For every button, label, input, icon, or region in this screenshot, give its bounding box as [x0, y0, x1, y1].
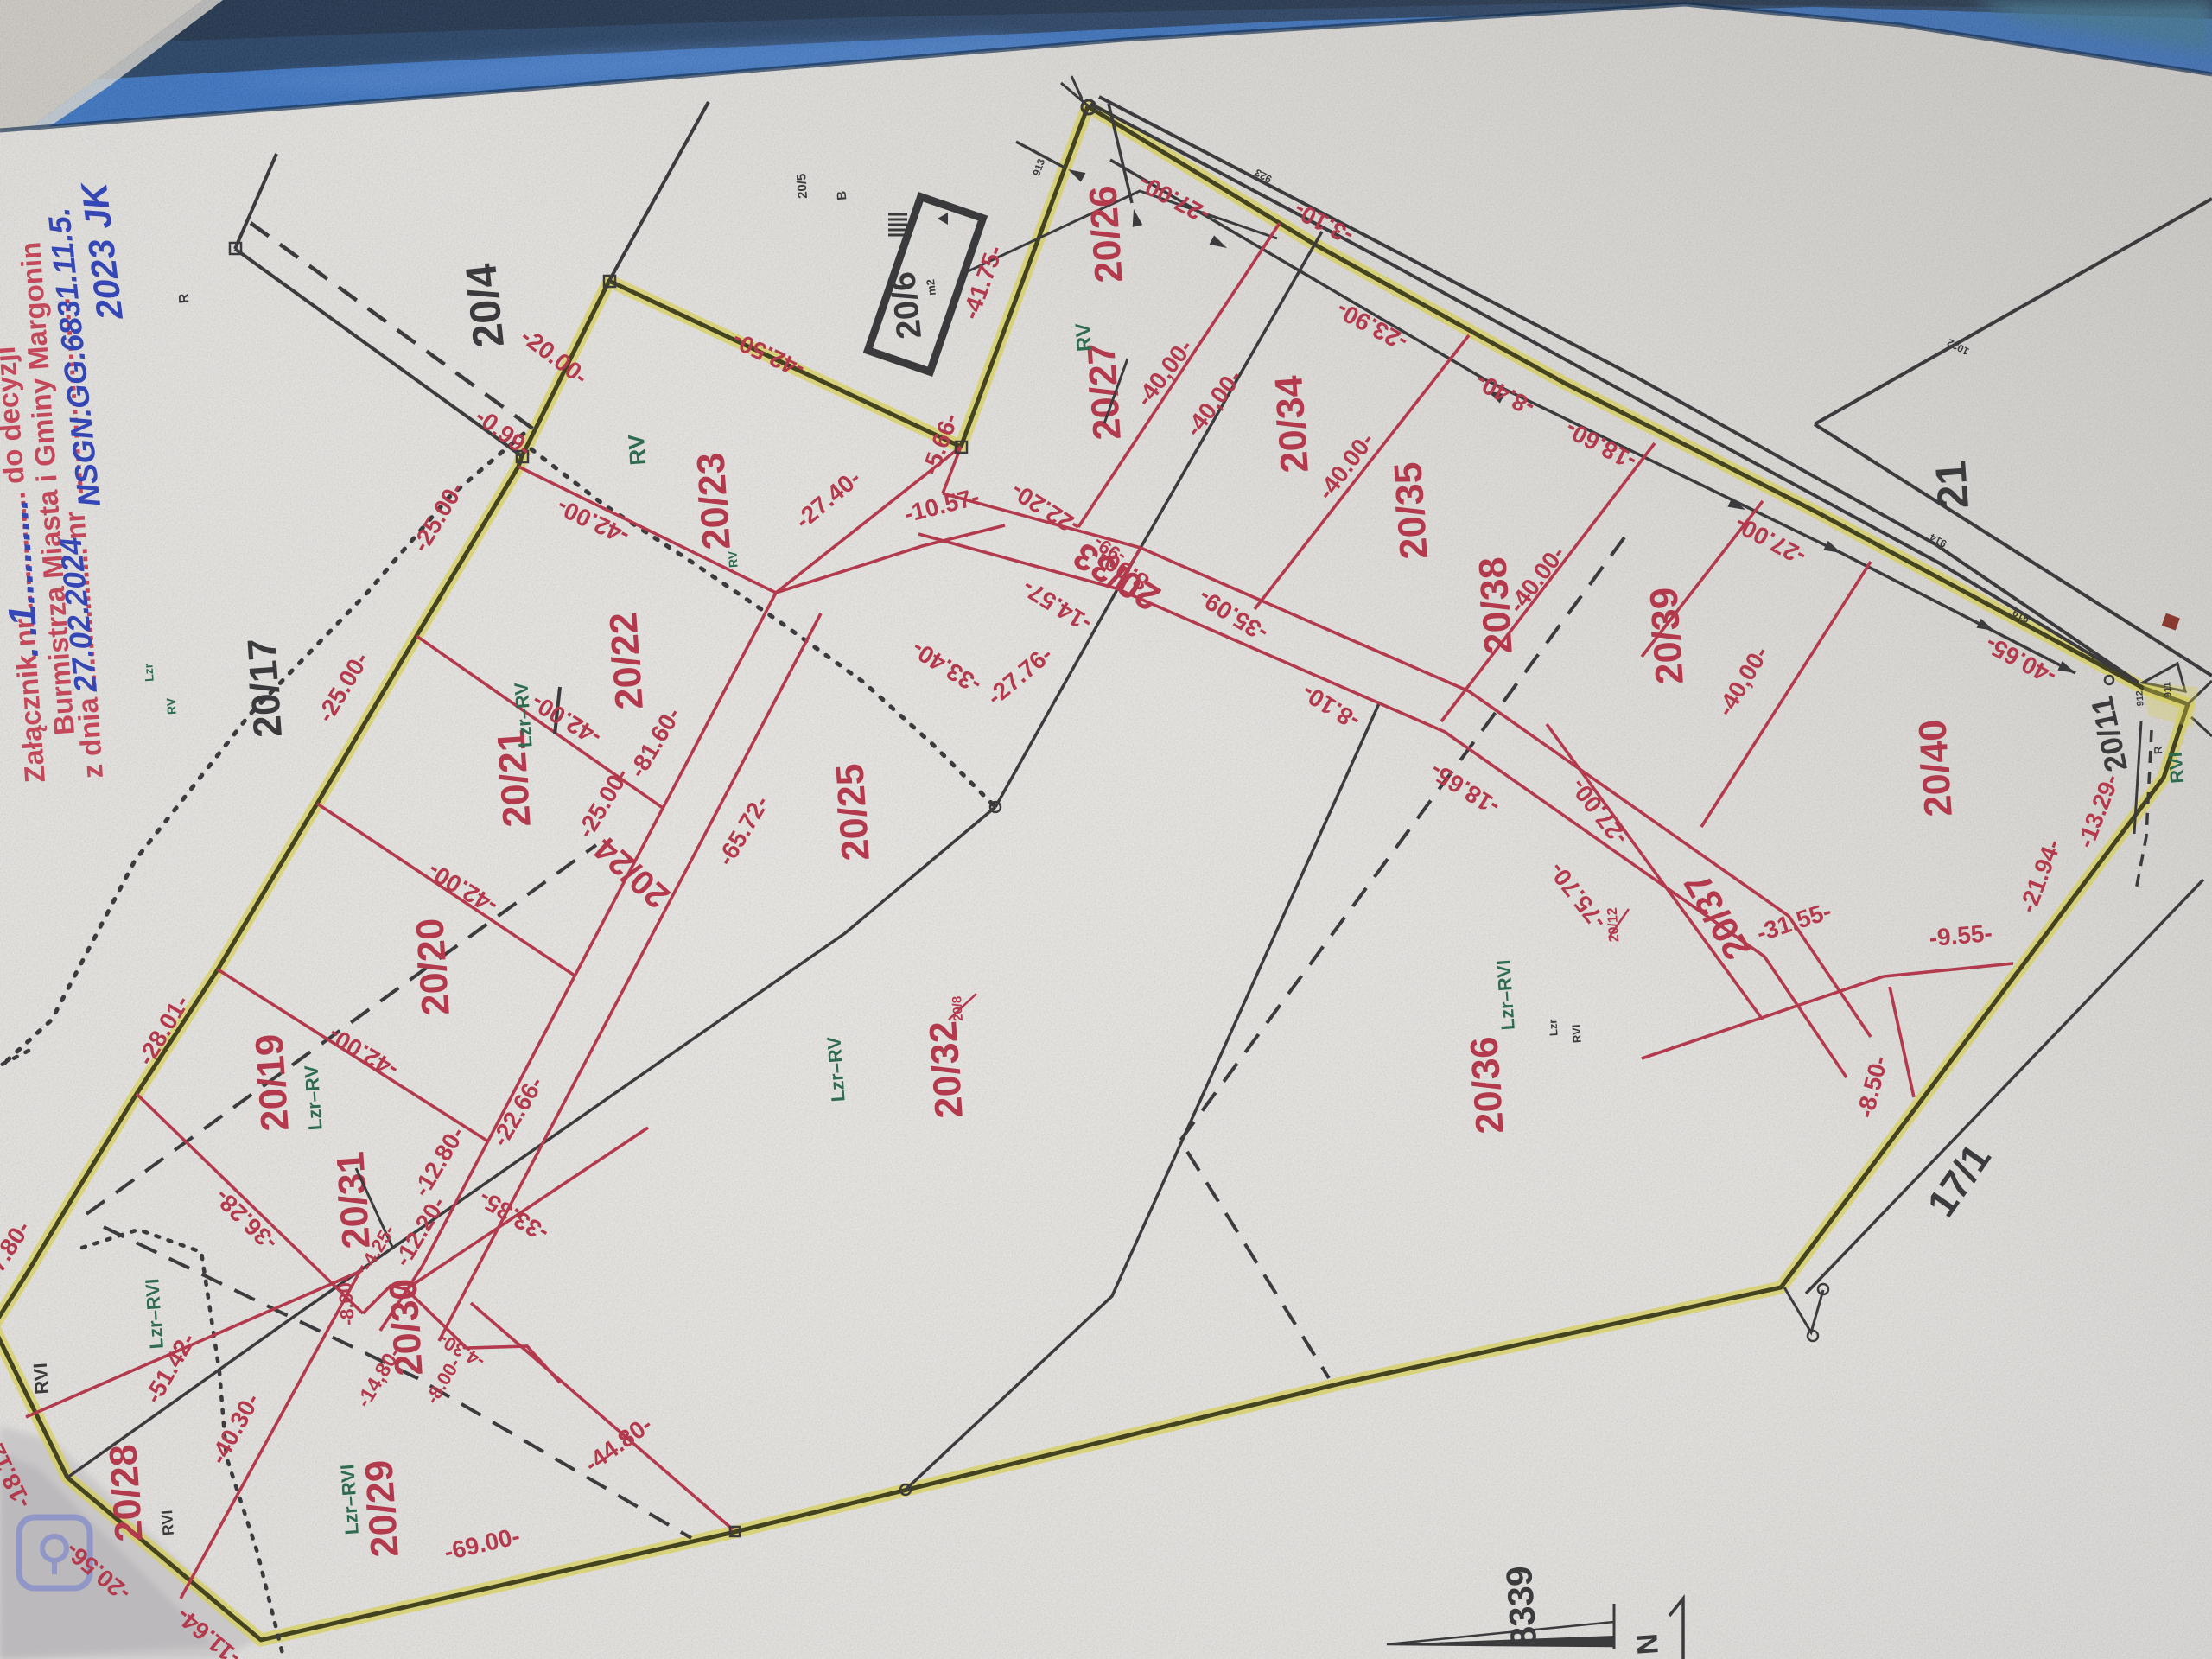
svg-text:m2: m2	[924, 278, 938, 296]
svg-text:Lzr–RV: Lzr–RV	[823, 1036, 849, 1103]
svg-text:20/39: 20/39	[1641, 586, 1692, 686]
svg-text:-9.55-: -9.55-	[1928, 919, 1993, 951]
svg-text:20/34: 20/34	[1266, 374, 1317, 474]
svg-text:20/26: 20/26	[1080, 184, 1131, 284]
svg-text:R: R	[177, 293, 193, 304]
svg-text:RV: RV	[725, 550, 740, 569]
svg-text:20/29: 20/29	[356, 1459, 407, 1559]
svg-text:20/28: 20/28	[100, 1443, 151, 1543]
svg-text:20/40: 20/40	[1910, 718, 1961, 818]
svg-text:20/20: 20/20	[407, 917, 458, 1017]
svg-text:B: B	[835, 190, 850, 200]
svg-text:20/19: 20/19	[246, 1033, 297, 1133]
svg-text:R: R	[2152, 745, 2165, 754]
svg-text:RVI: RVI	[29, 1363, 53, 1395]
svg-text:20/23: 20/23	[688, 451, 739, 551]
svg-text:20/5: 20/5	[794, 173, 810, 199]
svg-text:912: 912	[2134, 690, 2145, 707]
svg-text:20/27: 20/27	[1078, 341, 1129, 442]
svg-text:21: 21	[1926, 459, 1978, 510]
svg-text:8339: 8339	[1498, 1565, 1544, 1648]
svg-text:Lzr: Lzr	[1546, 1019, 1560, 1036]
svg-text:20/6: 20/6	[884, 270, 929, 340]
svg-text:20/35: 20/35	[1385, 461, 1436, 561]
svg-text:RVI: RVI	[2164, 752, 2188, 785]
svg-text:20/36: 20/36	[1461, 1035, 1512, 1135]
svg-text:RV: RV	[1071, 322, 1096, 353]
svg-text:RV: RV	[163, 697, 178, 715]
svg-text:20/12: 20/12	[1605, 907, 1623, 943]
svg-text:20/32: 20/32	[920, 1020, 971, 1120]
svg-text:20/4: 20/4	[456, 261, 513, 350]
svg-text:-8.00-: -8.00-	[334, 1275, 359, 1326]
svg-text:N: N	[1630, 1632, 1665, 1656]
svg-text:20/25: 20/25	[827, 762, 878, 862]
svg-text:RVI: RVI	[158, 1510, 177, 1536]
svg-text:911: 911	[2162, 682, 2173, 698]
svg-text:Lzr–RV: Lzr–RV	[300, 1065, 326, 1131]
svg-text:20/17: 20/17	[238, 637, 290, 739]
svg-text:20/22: 20/22	[601, 611, 652, 711]
svg-text:RV: RV	[623, 433, 651, 466]
svg-text:Lzr: Lzr	[141, 663, 156, 683]
svg-text:RVI: RVI	[1569, 1024, 1583, 1043]
